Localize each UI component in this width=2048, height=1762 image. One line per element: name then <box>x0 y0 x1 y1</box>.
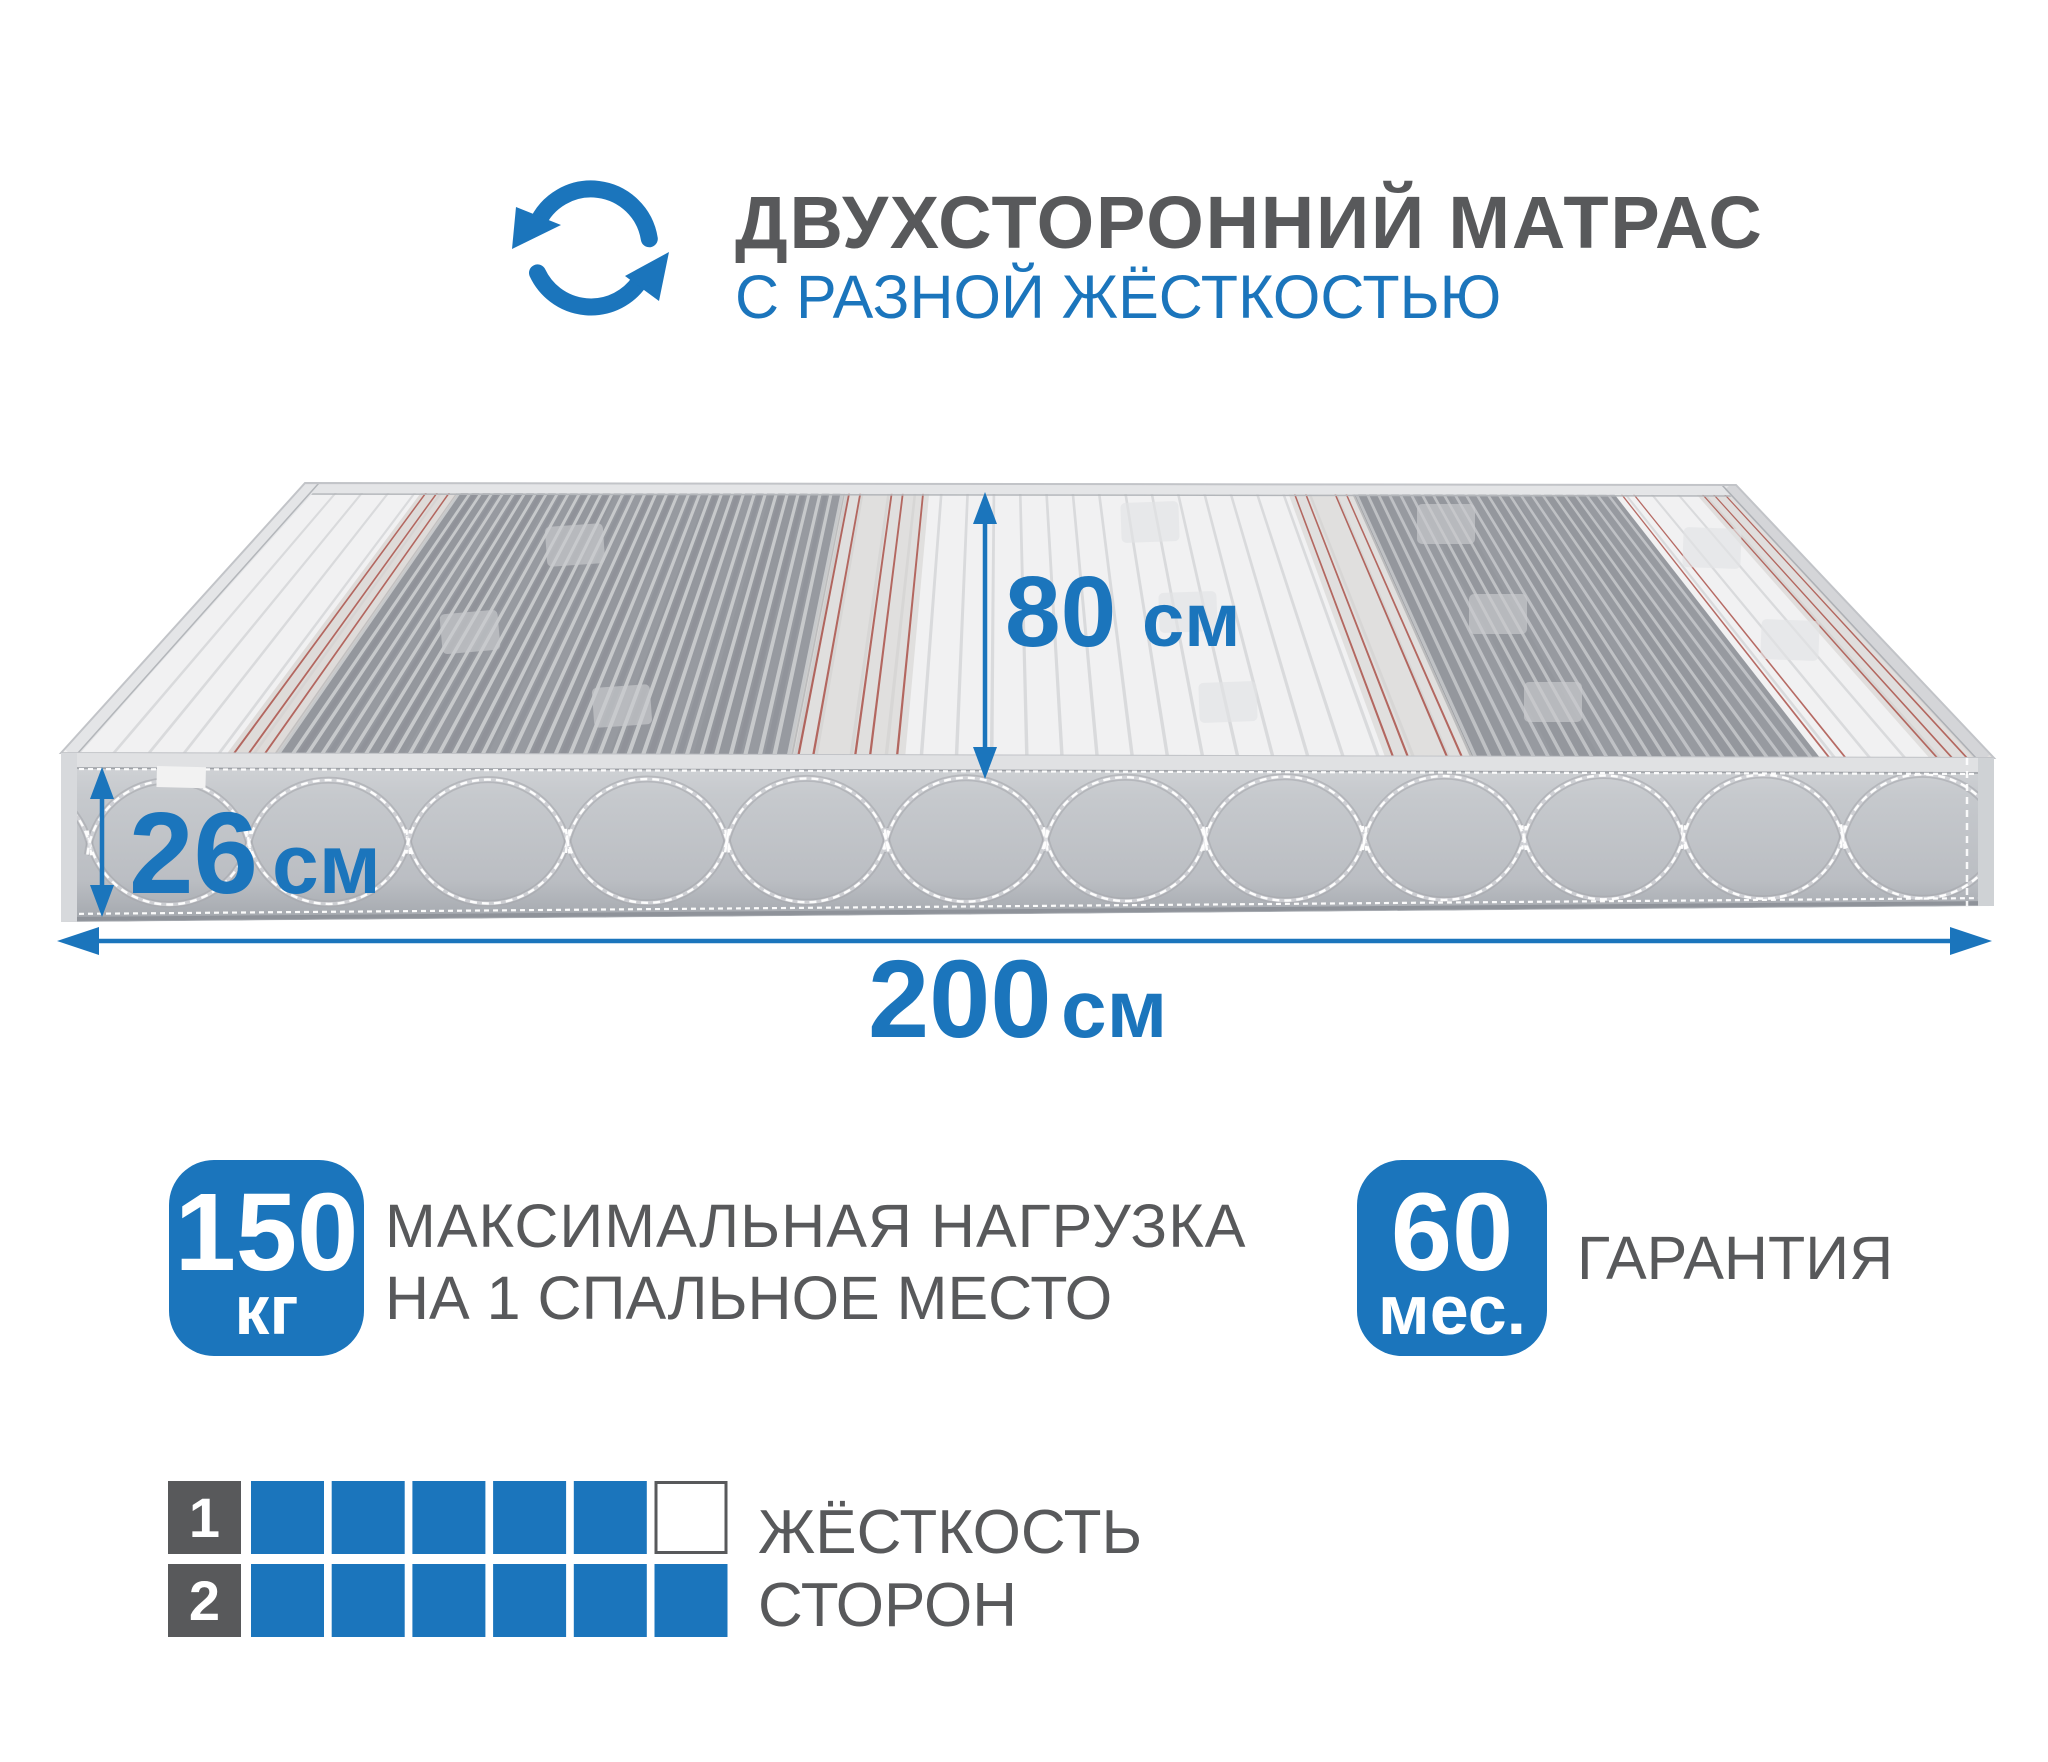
svg-text:см: см <box>272 817 381 911</box>
svg-text:СТОРОН: СТОРОН <box>758 1571 1017 1640</box>
svg-text:200: 200 <box>868 938 1052 1061</box>
svg-text:НА 1 СПАЛЬНОЕ МЕСТО: НА 1 СПАЛЬНОЕ МЕСТО <box>385 1264 1112 1332</box>
svg-text:26: 26 <box>129 788 258 918</box>
svg-text:ДВУХСТОРОННИЙ МАТРАС: ДВУХСТОРОННИЙ МАТРАС <box>735 180 1764 264</box>
svg-text:2: 2 <box>189 1569 220 1632</box>
svg-text:80: 80 <box>1005 556 1116 668</box>
svg-text:С РАЗНОЙ ЖЁСТКОСТЬЮ: С РАЗНОЙ ЖЁСТКОСТЬЮ <box>735 262 1501 331</box>
svg-text:ЖЁСТКОСТЬ: ЖЁСТКОСТЬ <box>758 1498 1142 1567</box>
svg-text:кг: кг <box>234 1271 298 1349</box>
svg-text:см: см <box>1142 578 1241 663</box>
svg-text:см: см <box>1061 964 1167 1055</box>
svg-text:мес.: мес. <box>1378 1271 1526 1349</box>
svg-text:1: 1 <box>189 1486 220 1549</box>
svg-text:МАКСИМАЛЬНАЯ НАГРУЗКА: МАКСИМАЛЬНАЯ НАГРУЗКА <box>385 1192 1246 1260</box>
svg-text:ГАРАНТИЯ: ГАРАНТИЯ <box>1577 1224 1893 1292</box>
